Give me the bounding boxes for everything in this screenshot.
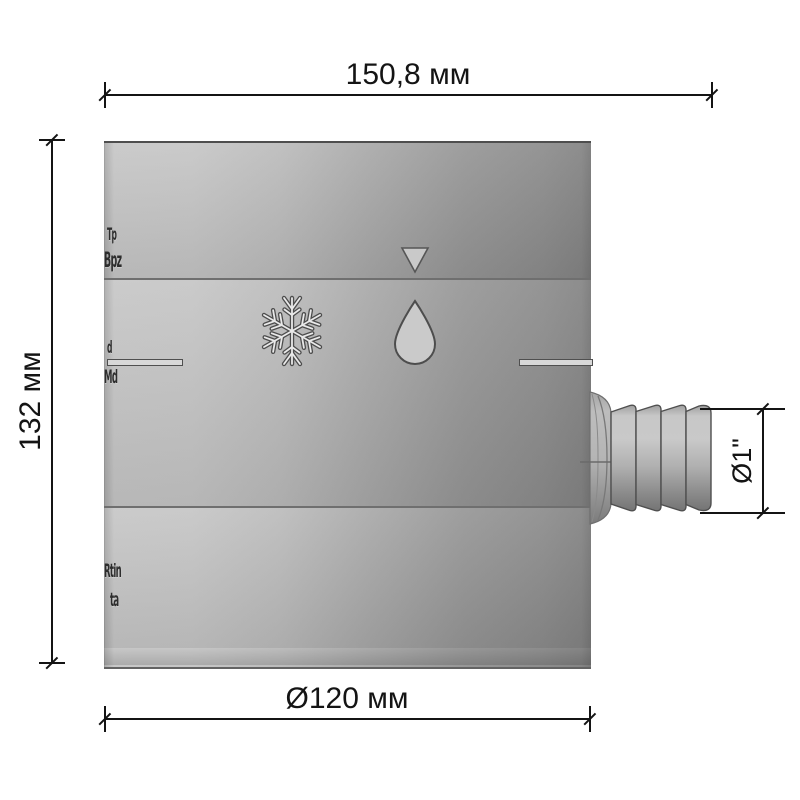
embossed-mark: Bpz	[104, 252, 121, 269]
water-drop-icon	[390, 299, 440, 367]
spout-barb-tip	[686, 405, 711, 510]
body-seam-lower	[104, 506, 591, 508]
spout-barb-ring	[636, 405, 661, 511]
body-seam-upper	[104, 278, 591, 280]
embossed-mark: Tp	[107, 227, 116, 244]
dim-spout-line	[762, 409, 764, 513]
dim-height-line	[51, 139, 53, 664]
left-slot	[107, 359, 183, 366]
spout-barb-ring	[661, 405, 686, 511]
body-middle-band	[104, 280, 591, 506]
embossed-mark: ta	[110, 592, 119, 609]
hose-barb-spout	[578, 386, 718, 528]
embossed-mark: d	[107, 340, 112, 357]
body-bottom-shading	[104, 648, 591, 665]
triangle-down-icon	[399, 245, 431, 275]
spout-barb-ring	[611, 405, 636, 511]
technical-drawing-canvas: Tp Bpz d Md Rtin ta	[0, 0, 800, 800]
snowflake-icon	[256, 294, 328, 368]
body-top-band	[104, 143, 591, 278]
spout-flare	[590, 392, 611, 524]
dim-spout-label: Ø1"	[727, 407, 757, 515]
body-bottom-band	[104, 508, 591, 648]
dim-width-label: 150,8 мм	[258, 58, 558, 92]
right-slot	[519, 359, 593, 366]
dim-width-line	[105, 94, 712, 96]
dim-diameter-label: Ø120 мм	[197, 682, 497, 716]
dim-diameter-line	[105, 718, 590, 720]
embossed-mark: Md	[104, 369, 117, 386]
dim-height-label: 132 мм	[14, 331, 48, 471]
embossed-mark: Rtin	[104, 563, 121, 580]
